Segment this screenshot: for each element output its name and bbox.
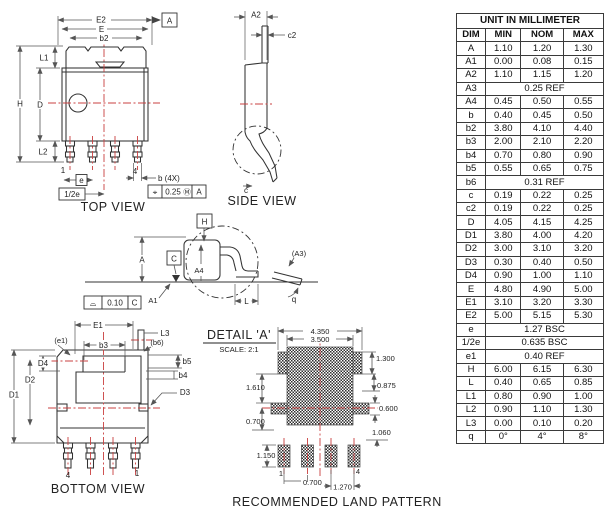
dim-cell: b5 xyxy=(457,162,486,175)
table-row: e10.40 REF xyxy=(457,350,604,363)
dim-cell: b3 xyxy=(457,136,486,149)
bottom-view-leads xyxy=(64,443,141,468)
detail-dimensions: H A C A4 (A3) A1 q L ⌓ 0.10 C xyxy=(84,214,307,309)
value-cell: 0.70 xyxy=(486,149,521,162)
dim-label-b4x: b (4X) xyxy=(158,174,180,183)
table-row: D13.804.004.20 xyxy=(457,229,604,242)
dim-label-D3: D3 xyxy=(180,388,191,397)
table-row: b23.804.104.40 xyxy=(457,122,604,135)
bottom-view-title: BOTTOM VIEW xyxy=(51,482,145,496)
dim-label-L2: L2 xyxy=(39,148,48,157)
value-cell: 0.22 xyxy=(521,203,563,216)
land-pattern: 4.350 3.500 1.300 0.875 0.600 1.060 1.61… xyxy=(232,327,441,510)
lp-dim-0700-pitch: 0.700 xyxy=(303,478,322,487)
drawing-canvas: E2 A E b2 H D L1 L2 1 4 e 1/2e b (4X) xyxy=(0,0,455,514)
dim-table-body: A1.101.201.30A10.000.080.15A21.101.151.2… xyxy=(457,42,604,444)
value-cell: 3.20 xyxy=(521,296,563,309)
value-cell: 3.80 xyxy=(486,122,521,135)
dim-label-L3: L3 xyxy=(161,329,170,338)
dim-cell: E xyxy=(457,283,486,296)
lp-dim-1060: 1.060 xyxy=(372,428,391,437)
value-cell: 0.08 xyxy=(521,55,563,68)
value-cell-span: 1.27 BSC xyxy=(486,323,604,336)
top-view-title: TOP VIEW xyxy=(81,200,146,214)
table-row: H6.006.156.30 xyxy=(457,363,604,376)
table-row: L0.400.650.85 xyxy=(457,377,604,390)
value-cell: 0.40 xyxy=(486,377,521,390)
value-cell: 6.15 xyxy=(521,363,563,376)
position-datum: A xyxy=(196,188,202,197)
value-cell-span: 0.25 REF xyxy=(486,82,604,95)
table-row: A10.000.080.15 xyxy=(457,55,604,68)
package-outline-drawing: E2 A E b2 H D L1 L2 1 4 e 1/2e b (4X) xyxy=(0,0,607,514)
value-cell: 4.25 xyxy=(563,216,603,229)
dim-label-L: L xyxy=(244,297,249,306)
dim-cell: A xyxy=(457,42,486,55)
detail-a-title: DETAIL 'A' xyxy=(207,328,271,342)
value-cell: 0° xyxy=(486,430,521,443)
table-row: D30.300.400.50 xyxy=(457,256,604,269)
dim-cell: 1/2e xyxy=(457,336,486,349)
value-cell: 0.40 xyxy=(486,109,521,122)
table-row: b60.31 REF xyxy=(457,176,604,189)
position-symbol: ⌖ xyxy=(153,188,158,197)
value-cell: 3.00 xyxy=(486,243,521,256)
value-cell: 0.90 xyxy=(486,270,521,283)
top-view-body-outline xyxy=(62,47,148,141)
dim-label-A4: A4 xyxy=(194,266,203,275)
table-row: A21.101.151.20 xyxy=(457,69,604,82)
value-cell: 2.00 xyxy=(486,136,521,149)
dim-cell: c xyxy=(457,189,486,202)
dim-label-b3: b3 xyxy=(99,341,108,350)
dim-cell: A1 xyxy=(457,55,486,68)
lp-dim-1610: 1.610 xyxy=(246,383,265,392)
table-row: A1.101.201.30 xyxy=(457,42,604,55)
value-cell: 5.00 xyxy=(563,283,603,296)
dim-cell: D xyxy=(457,216,486,229)
value-cell: 1.10 xyxy=(486,69,521,82)
top-view: E2 A E b2 H D L1 L2 1 4 e 1/2e b (4X) xyxy=(15,13,207,214)
value-cell: 0.85 xyxy=(563,377,603,390)
flatness-tolerance: 0.10 xyxy=(107,299,123,308)
value-cell: 3.20 xyxy=(563,243,603,256)
dim-label-q: q xyxy=(292,295,296,304)
value-cell: 0.45 xyxy=(486,95,521,108)
dim-cell: E2 xyxy=(457,310,486,323)
value-cell: 0.90 xyxy=(486,403,521,416)
value-cell: 2.20 xyxy=(563,136,603,149)
flatness-symbol: ⌓ xyxy=(90,299,97,308)
value-cell: 1.30 xyxy=(563,42,603,55)
dim-label-A: A xyxy=(139,256,145,265)
lp-pin4-label: 4 xyxy=(356,467,360,476)
value-cell: 0.65 xyxy=(521,162,563,175)
pin1-label-bottom: 1 xyxy=(135,469,140,478)
dim-label-E: E xyxy=(99,25,104,34)
table-row: D40.901.001.10 xyxy=(457,270,604,283)
detail-a-scale: SCALE: 2:1 xyxy=(219,345,258,354)
dim-label-D2: D2 xyxy=(25,376,36,385)
value-cell: 5.30 xyxy=(563,310,603,323)
dim-label-H: H xyxy=(17,100,23,109)
lp-dim-1270: 1.270 xyxy=(333,483,352,492)
dim-label-b6-ref: (b6) xyxy=(150,338,164,347)
dim-label-e1-ref: (e1) xyxy=(54,336,68,345)
col-header-dim: DIM xyxy=(457,29,486,42)
datum-flag-A: A xyxy=(167,17,173,26)
detail-profile-view: H A C A4 (A3) A1 q L ⌓ 0.10 C xyxy=(84,214,318,309)
side-view-dimensions: A2 c2 c xyxy=(234,10,297,195)
table-row: L20.901.101.30 xyxy=(457,403,604,416)
pin4-label-bottom: 4 xyxy=(66,471,71,480)
value-cell: 0.10 xyxy=(521,417,563,430)
value-cell: 6.30 xyxy=(563,363,603,376)
value-cell: 0.50 xyxy=(521,95,563,108)
lp-dim-0600: 0.600 xyxy=(379,404,398,413)
dim-label-A1: A1 xyxy=(148,296,157,305)
lp-dim-3500: 3.500 xyxy=(311,335,330,344)
value-cell: 4.00 xyxy=(521,229,563,242)
value-cell: 0.22 xyxy=(521,189,563,202)
table-row: e1.27 BSC xyxy=(457,323,604,336)
dim-label-b4: b4 xyxy=(179,371,188,380)
detail-a-balloon xyxy=(233,126,281,174)
dim-cell: H xyxy=(457,363,486,376)
value-cell: 1.00 xyxy=(521,270,563,283)
table-row: A30.25 REF xyxy=(457,82,604,95)
value-cell: 5.00 xyxy=(486,310,521,323)
dim-cell: A2 xyxy=(457,69,486,82)
pin1-label: 1 xyxy=(61,166,66,175)
dimension-table: UNIT IN MILLIMETER DIM MIN NOM MAX A1.10… xyxy=(456,13,604,444)
value-cell: 0.90 xyxy=(563,149,603,162)
value-cell: 1.20 xyxy=(563,69,603,82)
dim-cell: e xyxy=(457,323,486,336)
value-cell: 1.30 xyxy=(563,403,603,416)
dim-label-A2: A2 xyxy=(251,11,261,20)
table-header-row: DIM MIN NOM MAX xyxy=(457,29,604,42)
mmc-modifier: Ⓜ xyxy=(183,188,191,197)
dim-cell: e1 xyxy=(457,350,486,363)
value-cell: 4° xyxy=(521,430,563,443)
dim-label-D: D xyxy=(37,101,43,110)
table-row: L10.800.901.00 xyxy=(457,390,604,403)
side-view-title: SIDE VIEW xyxy=(227,194,296,208)
value-cell: 0.19 xyxy=(486,189,521,202)
dim-label-b5: b5 xyxy=(183,357,192,366)
col-header-nom: NOM xyxy=(521,29,563,42)
dim-cell: L xyxy=(457,377,486,390)
detail-a-label: DETAIL 'A' SCALE: 2:1 xyxy=(203,328,276,354)
flatness-datum: C xyxy=(132,299,138,308)
dim-label-A3: (A3) xyxy=(292,249,307,258)
dim-cell: L1 xyxy=(457,390,486,403)
value-cell-span: 0.635 BSC xyxy=(486,336,604,349)
value-cell: 3.80 xyxy=(486,229,521,242)
dim-label-E2: E2 xyxy=(96,16,106,25)
value-cell: 0.25 xyxy=(563,203,603,216)
value-cell: 0.00 xyxy=(486,55,521,68)
dim-label-e: e xyxy=(79,176,84,185)
dim-cell: L2 xyxy=(457,403,486,416)
value-cell: 0.19 xyxy=(486,203,521,216)
value-cell: 0.00 xyxy=(486,417,521,430)
value-cell: 0.25 xyxy=(563,189,603,202)
dim-cell: D4 xyxy=(457,270,486,283)
value-cell: 0.40 xyxy=(521,256,563,269)
dim-label-half-e: 1/2e xyxy=(64,190,80,199)
lp-pin1-label: 1 xyxy=(279,469,283,478)
value-cell: 0.55 xyxy=(486,162,521,175)
value-cell: 8° xyxy=(563,430,603,443)
table-row: c20.190.220.25 xyxy=(457,203,604,216)
col-header-min: MIN xyxy=(486,29,521,42)
table-title: UNIT IN MILLIMETER xyxy=(457,14,604,29)
value-cell: 0.20 xyxy=(563,417,603,430)
table-row: b32.002.102.20 xyxy=(457,136,604,149)
value-cell: 4.05 xyxy=(486,216,521,229)
value-cell-span: 0.31 REF xyxy=(486,176,604,189)
value-cell: 4.80 xyxy=(486,283,521,296)
dim-cell: c2 xyxy=(457,203,486,216)
lp-dim-1150: 1.150 xyxy=(257,451,276,460)
value-cell: 4.90 xyxy=(521,283,563,296)
value-cell: 0.80 xyxy=(486,390,521,403)
value-cell-span: 0.40 REF xyxy=(486,350,604,363)
value-cell: 1.20 xyxy=(521,42,563,55)
value-cell: 1.10 xyxy=(486,42,521,55)
lead-bend-outline xyxy=(184,240,302,285)
value-cell: 6.00 xyxy=(486,363,521,376)
dim-cell: L3 xyxy=(457,417,486,430)
dim-cell: E1 xyxy=(457,296,486,309)
position-tolerance: 0.25 xyxy=(165,188,181,197)
top-view-dimensions: E2 A E b2 H D L1 L2 1 4 e 1/2e b (4X) xyxy=(15,13,207,200)
value-cell: 0.45 xyxy=(521,109,563,122)
dim-cell: A4 xyxy=(457,95,486,108)
dim-label-D1: D1 xyxy=(9,391,20,400)
table-title-row: UNIT IN MILLIMETER xyxy=(457,14,604,29)
table-row: L30.000.100.20 xyxy=(457,417,604,430)
dim-cell: D2 xyxy=(457,243,486,256)
table-row: b0.400.450.50 xyxy=(457,109,604,122)
dim-label-H-box: H xyxy=(202,218,208,227)
table-row: 1/2e0.635 BSC xyxy=(457,336,604,349)
table-row: A40.450.500.55 xyxy=(457,95,604,108)
value-cell: 4.40 xyxy=(563,122,603,135)
bottom-view-dimensions: E1 (e1) b3 L3 (b6) b5 b4 D4 D2 D1 D3 4 1 xyxy=(6,321,192,481)
detail-circle xyxy=(186,226,258,298)
value-cell: 0.50 xyxy=(563,109,603,122)
value-cell: 1.00 xyxy=(563,390,603,403)
bottom-view: E1 (e1) b3 L3 (b6) b5 b4 D4 D2 D1 D3 4 1… xyxy=(6,321,192,497)
value-cell: 0.65 xyxy=(521,377,563,390)
dim-label-D4: D4 xyxy=(38,359,49,368)
datum-box-C: C xyxy=(171,255,177,264)
table-row: D23.003.103.20 xyxy=(457,243,604,256)
lp-dim-1300: 1.300 xyxy=(376,354,395,363)
side-view: A2 c2 c SIDE VIEW xyxy=(227,10,296,208)
value-cell: 0.30 xyxy=(486,256,521,269)
table-row: q0°4°8° xyxy=(457,430,604,443)
value-cell: 1.15 xyxy=(521,69,563,82)
dim-cell: A3 xyxy=(457,82,486,95)
value-cell: 4.20 xyxy=(563,229,603,242)
dim-label-L1: L1 xyxy=(40,54,49,63)
value-cell: 5.15 xyxy=(521,310,563,323)
value-cell: 0.75 xyxy=(563,162,603,175)
value-cell: 0.55 xyxy=(563,95,603,108)
dim-cell: D3 xyxy=(457,256,486,269)
table-row: b40.700.800.90 xyxy=(457,149,604,162)
value-cell: 3.30 xyxy=(563,296,603,309)
value-cell: 4.10 xyxy=(521,122,563,135)
land-pattern-title: RECOMMENDED LAND PATTERN xyxy=(232,495,441,509)
value-cell: 1.10 xyxy=(563,270,603,283)
table-row: b50.550.650.75 xyxy=(457,162,604,175)
value-cell: 4.15 xyxy=(521,216,563,229)
dim-cell: b xyxy=(457,109,486,122)
dim-label-E1: E1 xyxy=(93,321,103,330)
dim-cell: q xyxy=(457,430,486,443)
lp-dim-0875: 0.875 xyxy=(377,381,396,390)
value-cell: 2.10 xyxy=(521,136,563,149)
value-cell: 1.10 xyxy=(521,403,563,416)
table-row: c0.190.220.25 xyxy=(457,189,604,202)
table-row: E13.103.203.30 xyxy=(457,296,604,309)
value-cell: 0.15 xyxy=(563,55,603,68)
dim-cell: b6 xyxy=(457,176,486,189)
value-cell: 3.10 xyxy=(521,243,563,256)
table-row: E25.005.155.30 xyxy=(457,310,604,323)
table-row: D4.054.154.25 xyxy=(457,216,604,229)
col-header-max: MAX xyxy=(563,29,603,42)
table-row: E4.804.905.00 xyxy=(457,283,604,296)
dim-cell: b4 xyxy=(457,149,486,162)
value-cell: 3.10 xyxy=(486,296,521,309)
dim-cell: b2 xyxy=(457,122,486,135)
dim-cell: D1 xyxy=(457,229,486,242)
value-cell: 0.80 xyxy=(521,149,563,162)
dim-label-c2: c2 xyxy=(288,31,297,40)
value-cell: 0.50 xyxy=(563,256,603,269)
value-cell: 0.90 xyxy=(521,390,563,403)
position-tolerance-frame: ⌖ 0.25 Ⓜ A xyxy=(148,185,206,198)
flatness-tolerance-frame: ⌓ 0.10 C xyxy=(84,296,141,309)
dim-label-b2: b2 xyxy=(100,34,109,43)
lp-dim-0700-left: 0.700 xyxy=(246,417,265,426)
